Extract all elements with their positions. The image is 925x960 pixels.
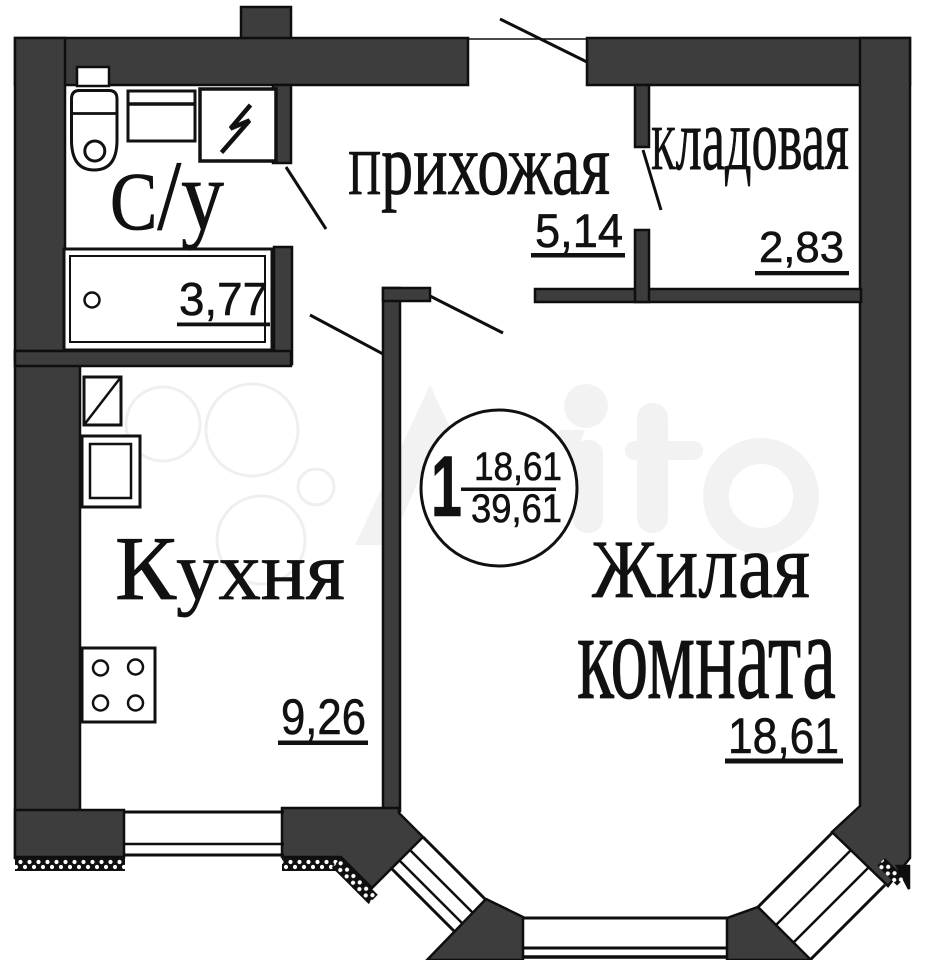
svg-text:комната: комната — [577, 588, 836, 725]
svg-text:18,61: 18,61 — [474, 445, 562, 489]
svg-text:Прихожая: Прихожая — [348, 117, 610, 214]
svg-text:Кухня: Кухня — [115, 518, 345, 619]
svg-text:С/у: С/у — [110, 140, 224, 251]
svg-text:5,14: 5,14 — [535, 204, 623, 257]
svg-text:1: 1 — [431, 439, 462, 535]
svg-text:3,77: 3,77 — [179, 273, 268, 325]
svg-text:39,61: 39,61 — [471, 487, 562, 531]
svg-text:2,83: 2,83 — [759, 223, 844, 272]
svg-text:Кладовая: Кладовая — [651, 92, 849, 189]
svg-text:9,26: 9,26 — [281, 689, 366, 745]
svg-text:18,61: 18,61 — [728, 708, 839, 764]
